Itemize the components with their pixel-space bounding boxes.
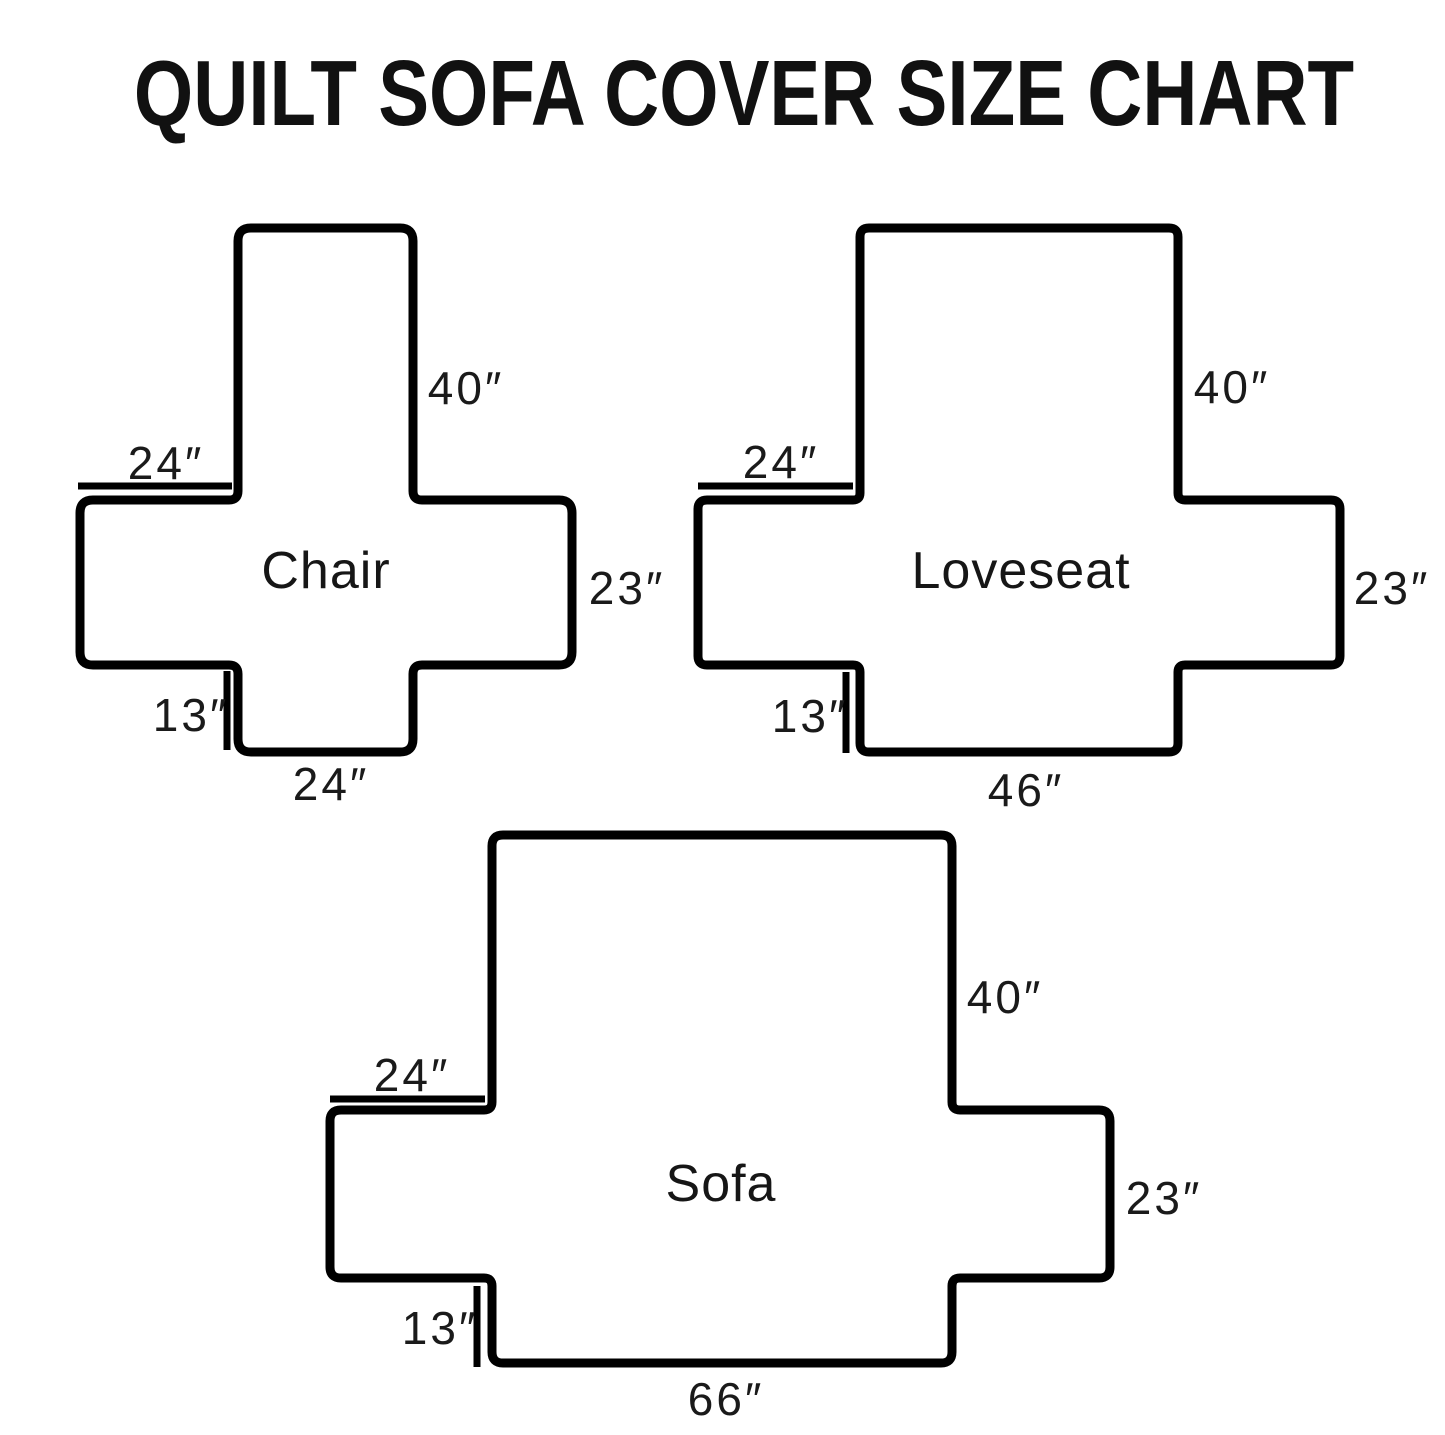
sofa-name-label: Sofa bbox=[666, 1158, 777, 1210]
chair-front-drop-label: 13″ bbox=[153, 692, 229, 738]
loveseat-seat-width-label: 46″ bbox=[988, 767, 1064, 813]
sofa-back-height-label: 40″ bbox=[967, 974, 1043, 1020]
chair-seat-width-label: 24″ bbox=[293, 761, 369, 807]
sofa-side-height-label: 23″ bbox=[1126, 1175, 1202, 1221]
sofa-front-drop-label: 13″ bbox=[402, 1305, 478, 1351]
size-chart: QUILT SOFA COVER SIZE CHART 40″ 24″ Chai… bbox=[0, 0, 1445, 1435]
sofa-seat-width-label: 66″ bbox=[688, 1376, 764, 1422]
chair-back-height-label: 40″ bbox=[428, 365, 504, 411]
chair-outline bbox=[80, 228, 572, 752]
chair-side-height-label: 23″ bbox=[589, 565, 665, 611]
loveseat-outline bbox=[698, 228, 1340, 752]
chair-arm-width-label: 24″ bbox=[128, 440, 204, 486]
loveseat-front-drop-label: 13″ bbox=[772, 693, 848, 739]
loveseat-back-height-label: 40″ bbox=[1194, 364, 1270, 410]
chair-name-label: Chair bbox=[261, 545, 390, 597]
sofa-arm-width-label: 24″ bbox=[374, 1052, 450, 1098]
loveseat-name-label: Loveseat bbox=[911, 545, 1130, 597]
loveseat-side-height-label: 23″ bbox=[1354, 565, 1430, 611]
loveseat-arm-width-label: 24″ bbox=[743, 439, 819, 485]
